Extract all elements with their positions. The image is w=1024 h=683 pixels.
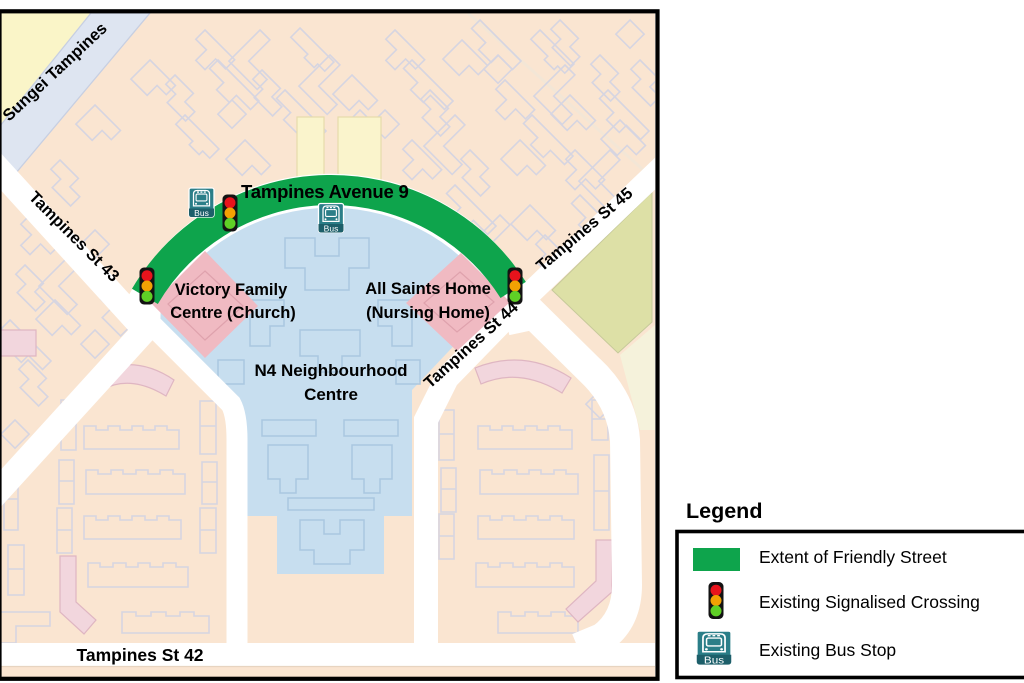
- svg-text:Tampines St 42: Tampines St 42: [76, 645, 203, 665]
- svg-text:Existing Signalised Crossing: Existing Signalised Crossing: [759, 592, 980, 612]
- svg-text:All Saints Home: All Saints Home: [365, 280, 491, 298]
- svg-text:Extent of Friendly Street: Extent of Friendly Street: [759, 547, 947, 567]
- svg-text:Centre: Centre: [304, 385, 358, 404]
- svg-text:N4 Neighbourhood: N4 Neighbourhood: [255, 361, 408, 380]
- svg-text:Existing Bus Stop: Existing Bus Stop: [759, 640, 896, 660]
- svg-text:Centre (Church): Centre (Church): [170, 304, 296, 322]
- svg-text:Legend: Legend: [686, 499, 762, 523]
- svg-text:Tampines Avenue 9: Tampines Avenue 9: [241, 181, 409, 202]
- svg-text:(Nursing Home): (Nursing Home): [366, 304, 490, 322]
- svg-text:Victory Family: Victory Family: [175, 281, 288, 299]
